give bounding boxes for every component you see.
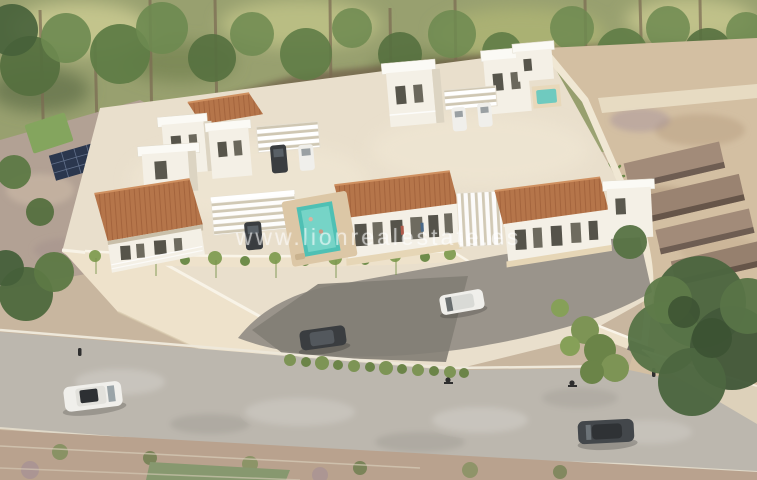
figure [420, 223, 423, 232]
center-pool [281, 191, 357, 267]
villa-2 [381, 59, 444, 128]
render-scene [0, 0, 757, 480]
parked-dark-car [244, 221, 263, 250]
parked-white-car [298, 144, 315, 171]
render-image: www.lionrealestate.es [0, 0, 757, 480]
parked-white-car [477, 102, 493, 127]
parked-dark-car [270, 144, 288, 173]
pedestrian [78, 348, 82, 356]
figure [401, 226, 404, 235]
pergola-mid [457, 191, 504, 247]
villa-4-cube [512, 41, 557, 83]
parked-white-car [451, 107, 467, 132]
mini-pool [536, 89, 557, 105]
dark-sedan-public-road [576, 418, 637, 451]
